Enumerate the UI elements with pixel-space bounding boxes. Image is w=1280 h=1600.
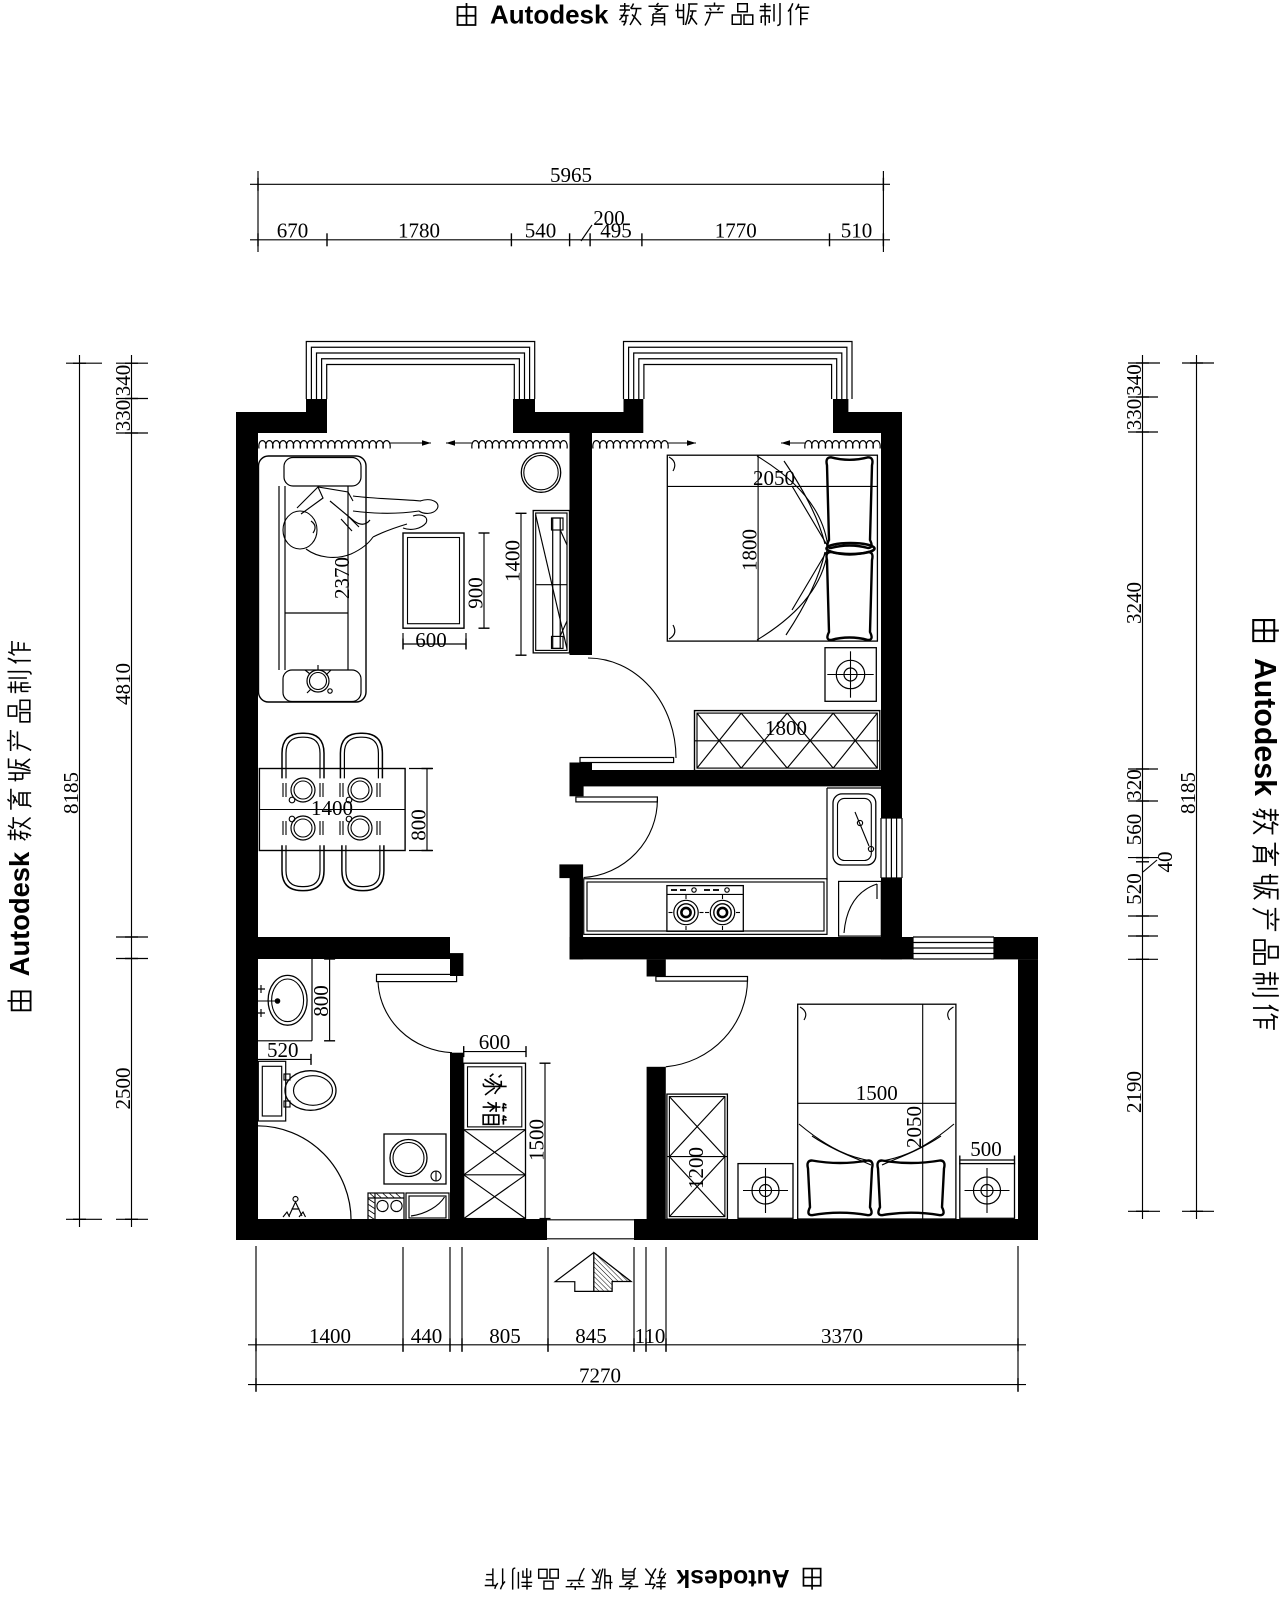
svg-text:2190: 2190	[1122, 1071, 1146, 1113]
svg-text:500: 500	[970, 1137, 1002, 1161]
svg-text:1780: 1780	[398, 219, 440, 243]
svg-text:5965: 5965	[550, 163, 592, 187]
svg-text:7270: 7270	[579, 1364, 621, 1388]
svg-text:845: 845	[575, 1324, 607, 1348]
svg-text:440: 440	[411, 1324, 443, 1348]
svg-text:200: 200	[593, 206, 625, 230]
svg-text:330: 330	[111, 400, 135, 432]
svg-text:900: 900	[464, 577, 488, 609]
svg-text:1800: 1800	[738, 529, 762, 571]
svg-text:4810: 4810	[111, 663, 135, 705]
svg-text:1400: 1400	[311, 796, 353, 820]
svg-text:1800: 1800	[765, 716, 807, 740]
svg-text:1500: 1500	[856, 1081, 898, 1105]
svg-text:1500: 1500	[525, 1119, 549, 1161]
svg-text:3240: 3240	[1122, 582, 1146, 624]
svg-text:540: 540	[525, 219, 557, 243]
svg-text:800: 800	[309, 985, 333, 1017]
svg-text:340: 340	[111, 365, 135, 397]
svg-text:805: 805	[489, 1324, 521, 1348]
svg-text:560: 560	[1122, 814, 1146, 846]
svg-text:2050: 2050	[902, 1106, 926, 1148]
svg-text:1200: 1200	[684, 1147, 708, 1189]
svg-text:1400: 1400	[309, 1324, 351, 1348]
svg-text:8185: 8185	[59, 772, 83, 814]
svg-text:2050: 2050	[753, 466, 795, 490]
svg-text:40: 40	[1153, 852, 1177, 873]
svg-text:670: 670	[277, 219, 309, 243]
svg-text:520: 520	[267, 1038, 299, 1062]
svg-text:600: 600	[415, 628, 447, 652]
svg-text:8185: 8185	[1176, 772, 1200, 814]
svg-text:1770: 1770	[715, 219, 757, 243]
svg-text:1400: 1400	[501, 540, 525, 582]
svg-text:110: 110	[635, 1324, 666, 1348]
svg-text:330: 330	[1122, 399, 1146, 431]
svg-text:2500: 2500	[111, 1068, 135, 1110]
svg-text:510: 510	[841, 219, 873, 243]
svg-text:600: 600	[479, 1030, 511, 1054]
svg-text:320: 320	[1122, 769, 1146, 801]
svg-text:520: 520	[1122, 873, 1146, 905]
svg-text:2370: 2370	[330, 557, 354, 599]
svg-text:800: 800	[407, 809, 431, 841]
svg-text:340: 340	[1122, 364, 1146, 396]
svg-text:3370: 3370	[821, 1324, 863, 1348]
